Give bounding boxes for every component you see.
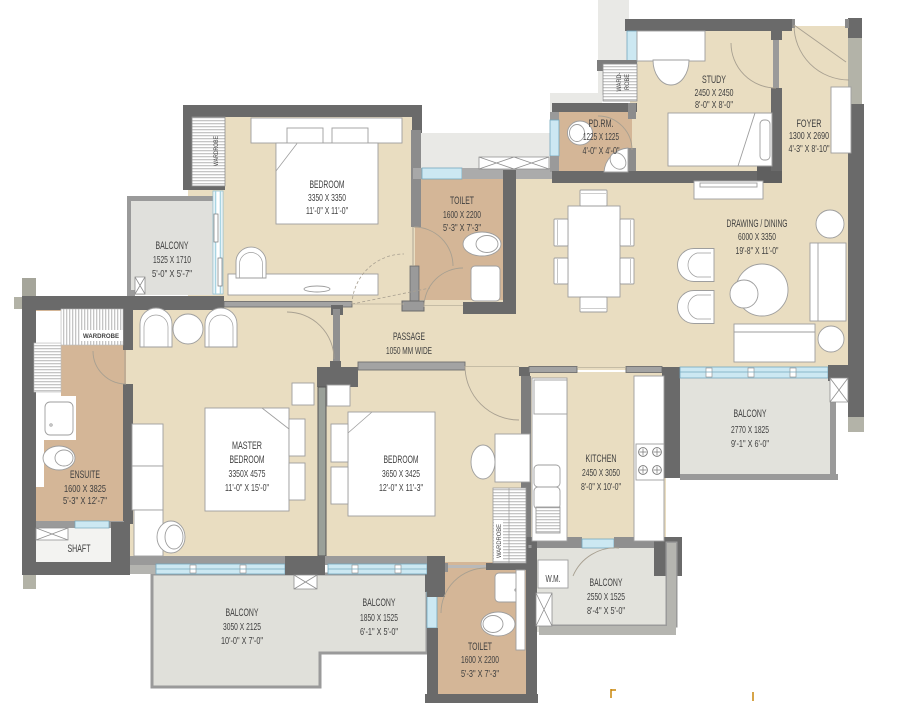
svg-text:BALCONY: BALCONY — [226, 607, 259, 619]
svg-text:3350 X 3350: 3350 X 3350 — [308, 193, 346, 204]
svg-text:11'-0" X 11'-0": 11'-0" X 11'-0" — [306, 206, 348, 217]
svg-text:MASTER: MASTER — [232, 440, 262, 452]
svg-text:BALCONY: BALCONY — [734, 408, 767, 420]
svg-text:PD.RM.: PD.RM. — [589, 118, 614, 130]
svg-text:WARDROBE: WARDROBE — [496, 523, 503, 558]
svg-text:WARDROBE: WARDROBE — [83, 333, 120, 340]
svg-text:6000 X 3350: 6000 X 3350 — [738, 232, 776, 243]
svg-text:8'-4" X 5'-0": 8'-4" X 5'-0" — [587, 606, 625, 617]
svg-text:2770 X 1825: 2770 X 1825 — [731, 425, 769, 436]
svg-text:1850 X 1525: 1850 X 1525 — [360, 613, 398, 624]
svg-text:4'-3" X 8'-10": 4'-3" X 8'-10" — [789, 144, 830, 155]
svg-text:ROBE: ROBE — [624, 73, 631, 90]
svg-text:3650 X 3425: 3650 X 3425 — [382, 469, 420, 480]
svg-text:BEDROOM: BEDROOM — [230, 454, 265, 466]
svg-text:1050 MM WIDE: 1050 MM WIDE — [386, 346, 432, 357]
svg-text:10'-0" X 7'-0": 10'-0" X 7'-0" — [221, 636, 263, 647]
svg-text:BEDROOM: BEDROOM — [384, 454, 419, 466]
svg-text:1600 X 3825: 1600 X 3825 — [64, 484, 106, 495]
svg-text:12'-0" X 11'-3": 12'-0" X 11'-3" — [379, 483, 423, 494]
svg-text:6'-1" X 5'-0": 6'-1" X 5'-0" — [360, 627, 398, 638]
svg-text:BALCONY: BALCONY — [590, 577, 623, 589]
svg-text:4'-0" X 4'-0": 4'-0" X 4'-0" — [583, 146, 620, 157]
svg-text:2450 X 3050: 2450 X 3050 — [582, 468, 620, 479]
svg-text:TOILET: TOILET — [450, 195, 474, 207]
svg-text:9'-1" X 6'-0": 9'-1" X 6'-0" — [731, 439, 769, 450]
svg-text:8'-0" X 8'-0": 8'-0" X 8'-0" — [695, 100, 733, 111]
svg-text:5'-3" X 12'-7": 5'-3" X 12'-7" — [63, 496, 107, 507]
svg-text:KITCHEN: KITCHEN — [586, 453, 617, 465]
svg-text:BEDROOM: BEDROOM — [310, 179, 345, 191]
svg-text:DRAWING / DINING: DRAWING / DINING — [727, 218, 788, 230]
svg-text:5'-3" X 7'-3": 5'-3" X 7'-3" — [461, 669, 499, 680]
svg-text:1300 X 2690: 1300 X 2690 — [789, 131, 829, 142]
svg-text:WARD-: WARD- — [616, 73, 623, 92]
svg-text:5'-0" X 5'-7": 5'-0" X 5'-7" — [152, 269, 192, 280]
svg-text:2450 X 2450: 2450 X 2450 — [695, 88, 734, 99]
svg-text:WARDROBE: WARDROBE — [213, 136, 220, 166]
svg-text:ENSUITE: ENSUITE — [70, 469, 100, 481]
svg-text:11'-0" X 15'-0": 11'-0" X 15'-0" — [225, 483, 269, 494]
svg-text:1600 X 2200: 1600 X 2200 — [461, 655, 499, 666]
svg-text:5'-3" X 7'-3": 5'-3" X 7'-3" — [443, 223, 481, 234]
svg-text:BALCONY: BALCONY — [363, 597, 396, 609]
svg-text:3350X 4575: 3350X 4575 — [229, 469, 266, 480]
svg-text:1225 X 1225: 1225 X 1225 — [583, 132, 619, 143]
svg-text:PASSAGE: PASSAGE — [393, 331, 425, 343]
svg-text:1600 X 2200: 1600 X 2200 — [443, 210, 481, 221]
svg-text:SHAFT: SHAFT — [68, 543, 91, 555]
svg-text:BALCONY: BALCONY — [156, 240, 189, 252]
svg-text:19'-8" X 11'-0": 19'-8" X 11'-0" — [736, 246, 779, 257]
svg-text:8'-0" X 10'-0": 8'-0" X 10'-0" — [581, 482, 621, 493]
svg-text:1525 X 1710: 1525 X 1710 — [153, 255, 191, 266]
svg-text:STUDY: STUDY — [702, 74, 726, 86]
svg-text:3050 X 2125: 3050 X 2125 — [223, 622, 261, 633]
svg-text:TOILET: TOILET — [468, 641, 492, 653]
svg-text:W.M.: W.M. — [546, 574, 561, 585]
svg-text:2550 X 1525: 2550 X 1525 — [587, 592, 625, 603]
svg-text:FOYER: FOYER — [797, 118, 822, 130]
